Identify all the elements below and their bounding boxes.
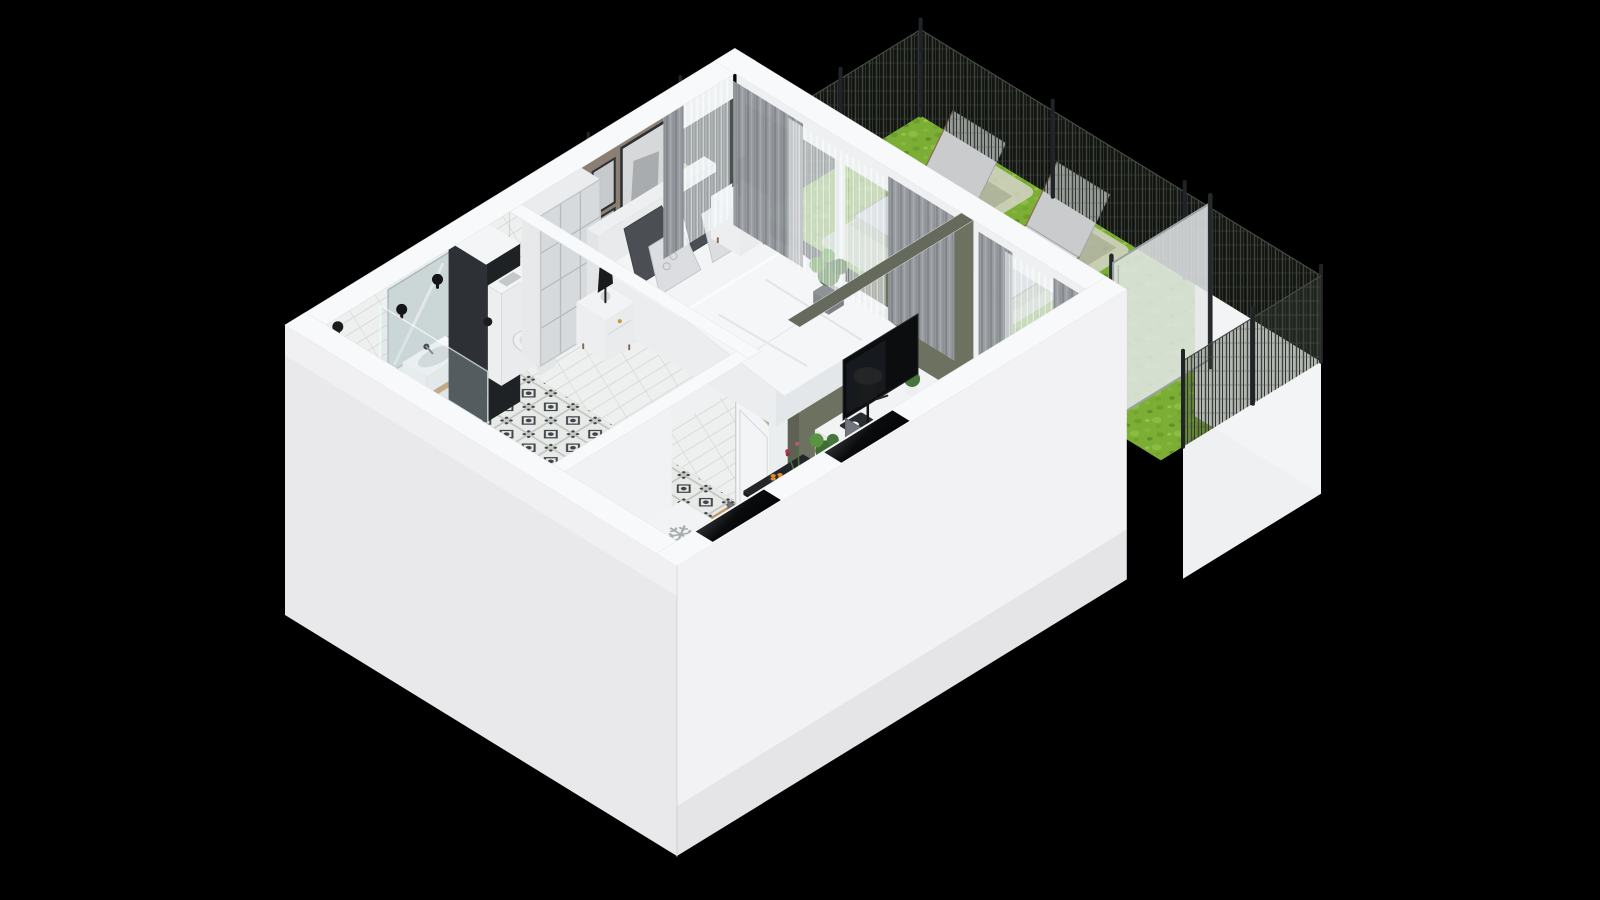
apartment-3d-floorplan-render: ❄ bbox=[0, 0, 1600, 900]
floorplan-scene: ❄ bbox=[0, 0, 1600, 900]
